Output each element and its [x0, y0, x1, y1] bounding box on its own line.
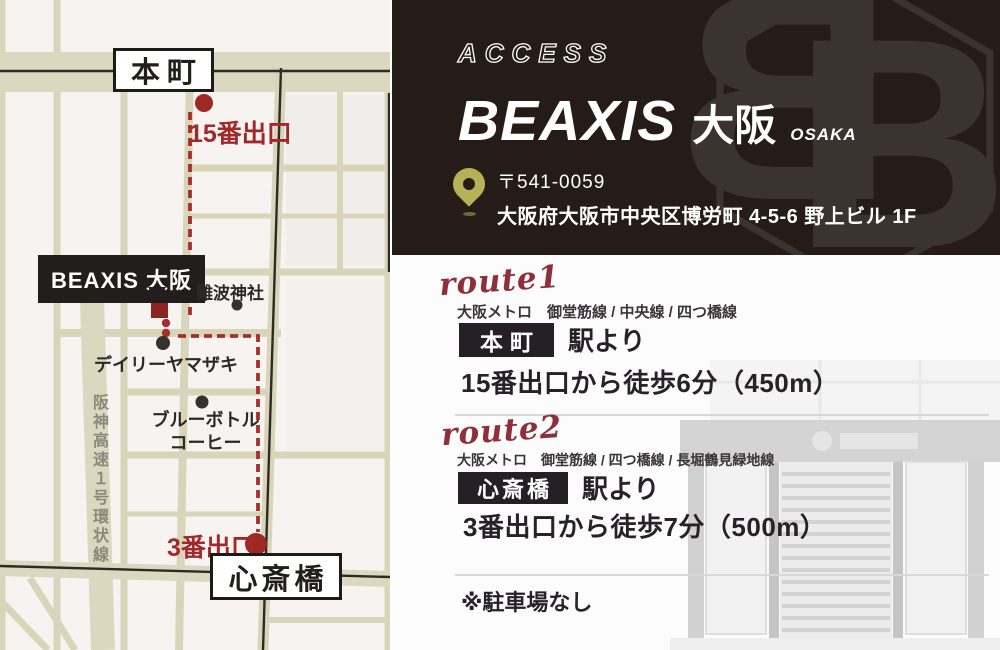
route1-script-title: route1 — [438, 259, 561, 303]
destination-marker — [151, 301, 168, 318]
parking-note: ※駐車場なし — [461, 585, 592, 617]
brand-name-jp: 大阪 — [692, 92, 776, 153]
route2-metro-lines: 大阪メトロ 御堂筋線 / 四つ橋線 / 長堀鶴見緑地線 — [457, 450, 774, 470]
street-map: 本町 15番出口 BEAXIS 大阪 難波神社 デイリーヤマザキ ブルーボトル … — [0, 0, 390, 650]
divider — [455, 574, 989, 576]
coffee-dot — [196, 396, 209, 409]
route2-station-row: 心斎橋 駅より — [458, 469, 659, 506]
map-roads-graphic — [0, 0, 390, 650]
brand-title: BEAXIS 大阪 OSAKA — [458, 88, 857, 154]
shrine-dot — [232, 300, 243, 311]
route1-metro-lines: 大阪メトロ 御堂筋線 / 中央線 / 四つ橋線 — [457, 301, 737, 322]
location-pin-shadow — [463, 212, 476, 216]
exit3-dot — [245, 533, 267, 555]
route2-station-badge: 心斎橋 — [458, 472, 568, 504]
brand-name-en: BEAXIS — [458, 88, 676, 154]
location-pin-icon — [446, 161, 491, 206]
brand-name-sub: OSAKA — [790, 125, 856, 145]
routes-panel: route1 大阪メトロ 御堂筋線 / 中央線 / 四つ橋線 本町 駅より 15… — [392, 255, 1000, 650]
route1-walk-info: 15番出口から徒歩6分（450m） — [461, 363, 839, 400]
street-address: 大阪府大阪市中央区博労町 4-5-6 野上ビル 1F — [497, 200, 917, 229]
route2-from-station: 駅より — [582, 469, 659, 506]
route2-walk-info: 3番出口から徒歩7分（500m） — [463, 507, 826, 544]
route2-script-title: route2 — [440, 409, 563, 453]
access-infographic: 本町 15番出口 BEAXIS 大阪 難波神社 デイリーヤマザキ ブルーボトル … — [0, 0, 1000, 650]
route1-station-badge: 本町 — [459, 323, 554, 357]
header-panel: BB ACCESS BEAXIS 大阪 OSAKA 〒541-0059 大阪府大… — [392, 0, 1000, 255]
route1-station-row: 本町 駅より — [459, 321, 645, 358]
address-block: 〒541-0059 大阪府大阪市中央区博労町 4-5-6 野上ビル 1F — [497, 167, 917, 229]
route1-from-station: 駅より — [568, 321, 645, 358]
access-kicker: ACCESS — [458, 38, 614, 69]
convenience-dot — [156, 336, 170, 350]
postal-code: 〒541-0059 — [497, 167, 917, 194]
exit15-dot — [195, 94, 213, 112]
business-label-pointer — [148, 287, 166, 303]
